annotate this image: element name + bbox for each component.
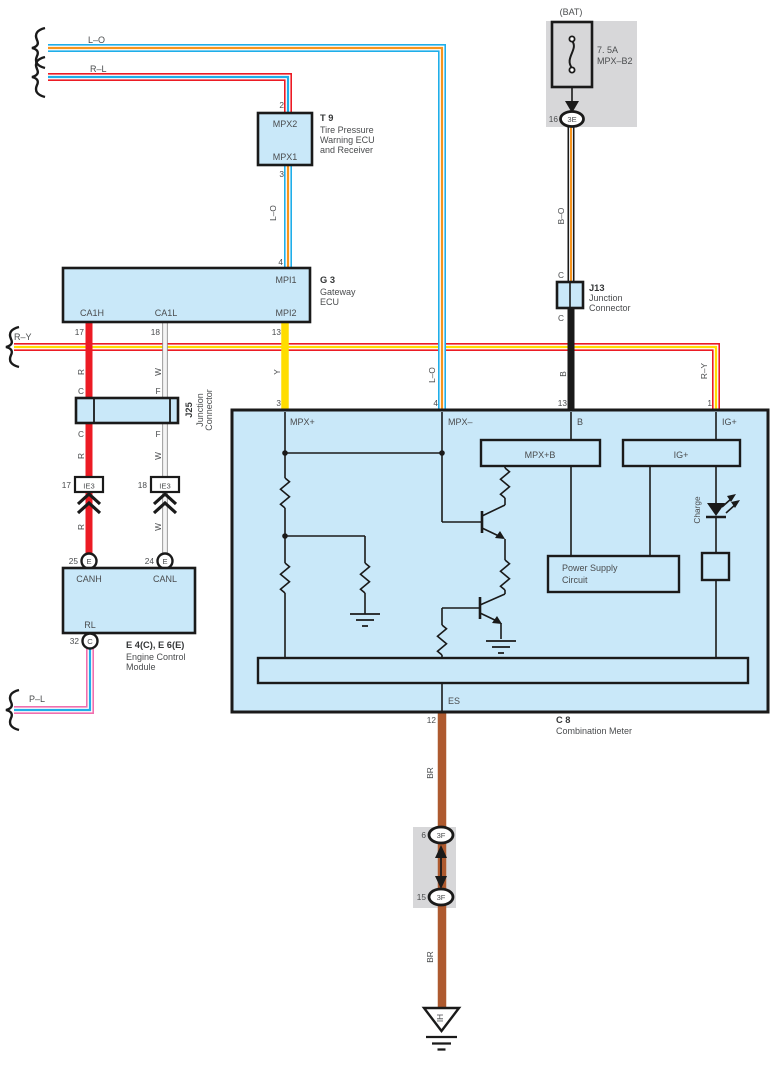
meter-pin-mpx-minus: 4 xyxy=(433,398,438,408)
g3-name-2: ECU xyxy=(320,297,339,307)
meter-terminal-mpx-plus: MPX+ xyxy=(290,417,315,427)
label-pl: P–L xyxy=(29,694,45,704)
label-ry: R–Y xyxy=(14,332,32,342)
wire-label-br-bottom: BR xyxy=(425,951,435,963)
wire-label-r-mid: R xyxy=(76,453,86,459)
j25-id: J25 xyxy=(184,402,194,418)
wire-label-y: Y xyxy=(272,369,282,375)
j25-box xyxy=(76,398,178,423)
fuse-name: MPX–B2 xyxy=(597,56,633,66)
j13-c-below: C xyxy=(558,313,564,323)
g3-terminal-mpi2: MPI2 xyxy=(275,308,296,318)
meter-terminal-mpx-minus: MPX– xyxy=(448,417,473,427)
connector-3f-bottom-label: 3F xyxy=(437,893,446,902)
t9-terminal-mpx1: MPX1 xyxy=(273,152,298,162)
g3-name-1: Gateway xyxy=(320,287,356,297)
ecm-name-2: Module xyxy=(126,662,156,672)
ie3-left-pin: 17 xyxy=(62,480,72,490)
j13-c-above: C xyxy=(558,270,564,280)
wire-stroke xyxy=(48,77,288,113)
meter-terminal-ig: IG+ xyxy=(722,417,737,427)
meter-psc-label-1: Power Supply xyxy=(562,563,618,573)
t9-terminal-mpx2: MPX2 xyxy=(273,119,298,129)
j13-name-1: Junction xyxy=(589,293,623,303)
fuse-bat-label: (BAT) xyxy=(560,7,583,17)
wiring-diagram: 2 MPX2 MPX1 3 T 9 Tire Pressure Warning … xyxy=(0,0,777,1062)
wire-rl xyxy=(48,77,288,113)
connector-3f-bottom-pin: 15 xyxy=(417,892,427,902)
g3-pin-ca1h: 17 xyxy=(75,327,85,337)
t9-name-2: Warning ECU xyxy=(320,135,375,145)
fuse-terminal-dot xyxy=(569,36,574,41)
ecm-conn-canl: E xyxy=(162,557,167,566)
meter-id: C 8 xyxy=(556,715,570,725)
meter-pin-ig: 1 xyxy=(707,398,712,408)
ecm-name-1: Engine Control xyxy=(126,652,186,662)
wire-label-w-bot: W xyxy=(153,523,163,531)
g3-terminal-ca1l: CA1L xyxy=(155,308,178,318)
ecm-terminal-canh: CANH xyxy=(76,574,102,584)
wire-label-b: B xyxy=(558,371,568,377)
meter-mpxb-label: MPX+B xyxy=(525,450,556,460)
wire-stroke xyxy=(48,48,442,412)
ecm-terminal-rl: RL xyxy=(84,620,96,630)
ecm-pin-rl: 32 xyxy=(70,636,80,646)
wire-stroke xyxy=(48,48,442,412)
g3-pin-mpi2: 13 xyxy=(272,327,282,337)
meter-pin-mpx-plus: 3 xyxy=(276,398,281,408)
ecm-conn-rl: C xyxy=(87,637,93,646)
wire-label-w-top: W xyxy=(153,368,163,376)
t9-name-3: and Receiver xyxy=(320,145,373,155)
j25-f-above: F xyxy=(155,386,160,396)
ecm-id: E 4(C), E 6(E) xyxy=(126,640,184,650)
ground-label: IH xyxy=(435,1014,445,1022)
wire-pl xyxy=(14,649,90,710)
g3-terminal-ca1h: CA1H xyxy=(80,308,104,318)
j13-name-2: Connector xyxy=(589,303,631,313)
wire-stroke xyxy=(14,649,90,710)
connector-3e-label: 3E xyxy=(567,115,576,124)
wire-stroke xyxy=(48,77,288,113)
wire-label-br-top: BR xyxy=(425,767,435,779)
ecm-pin-canh: 25 xyxy=(69,556,79,566)
t9-pin-top: 2 xyxy=(279,100,284,110)
meter-terminal-b: B xyxy=(577,417,583,427)
wire-label-bo: B–O xyxy=(556,207,566,224)
meter-pin-b: 13 xyxy=(558,398,568,408)
ie3-right-label: IE3 xyxy=(159,482,170,491)
j25-name-2: Connector xyxy=(204,389,214,431)
label-lo: L–O xyxy=(88,35,105,45)
fuse-pin: 16 xyxy=(549,114,559,124)
wire-label-lo-t9g3: L–O xyxy=(268,205,278,221)
wire-label-lo-meter: L–O xyxy=(427,367,437,383)
wire-continuation-brace xyxy=(32,28,45,68)
meter-terminal-es: ES xyxy=(448,696,460,706)
ie3-left-label: IE3 xyxy=(83,482,94,491)
g3-pin-mpi1: 4 xyxy=(278,257,283,267)
wire-label-r-bot: R xyxy=(76,524,86,530)
g3-terminal-mpi1: MPI1 xyxy=(275,275,296,285)
j25-c-below: C xyxy=(78,429,84,439)
meter-name: Combination Meter xyxy=(556,726,632,736)
t9-pin-bottom: 3 xyxy=(279,169,284,179)
ground-icon xyxy=(426,1037,457,1050)
fuse-rating: 7. 5A xyxy=(597,45,618,55)
ecm-conn-canh: E xyxy=(86,557,91,566)
connector-3f-top-label: 3F xyxy=(437,831,446,840)
g3-pin-ca1l: 18 xyxy=(151,327,161,337)
wire-stroke xyxy=(14,649,90,710)
ecm-pin-canl: 24 xyxy=(145,556,155,566)
meter-ig-box-label: IG+ xyxy=(674,450,689,460)
wire-stroke xyxy=(48,48,442,412)
meter-psc-label-2: Circuit xyxy=(562,575,588,585)
wire-label-ry-meter: R–Y xyxy=(699,362,709,379)
t9-id: T 9 xyxy=(320,113,333,123)
ie3-right-pin: 18 xyxy=(138,480,148,490)
wiring-diagram-page: 2 MPX2 MPX1 3 T 9 Tire Pressure Warning … xyxy=(0,0,777,1062)
connector-3f-top-pin: 6 xyxy=(421,830,426,840)
junction-dot xyxy=(282,450,288,456)
wire-label-r-top: R xyxy=(76,369,86,375)
j25-f-below: F xyxy=(155,429,160,439)
meter-charge-label: Charge xyxy=(692,496,702,524)
fuse-terminal-dot xyxy=(569,67,574,72)
wire-continuation-brace xyxy=(32,57,45,97)
meter-pin-es: 12 xyxy=(427,715,437,725)
t9-name-1: Tire Pressure xyxy=(320,125,374,135)
j13-id: J13 xyxy=(589,283,605,293)
j25-c-above: C xyxy=(78,386,84,396)
ecm-terminal-canl: CANL xyxy=(153,574,177,584)
wire-lo xyxy=(48,48,442,412)
g3-id: G 3 xyxy=(320,275,335,285)
wire-stroke xyxy=(14,649,90,710)
label-rl: R–L xyxy=(90,64,107,74)
wire-label-w-mid: W xyxy=(153,452,163,460)
wire-stroke xyxy=(48,77,288,113)
